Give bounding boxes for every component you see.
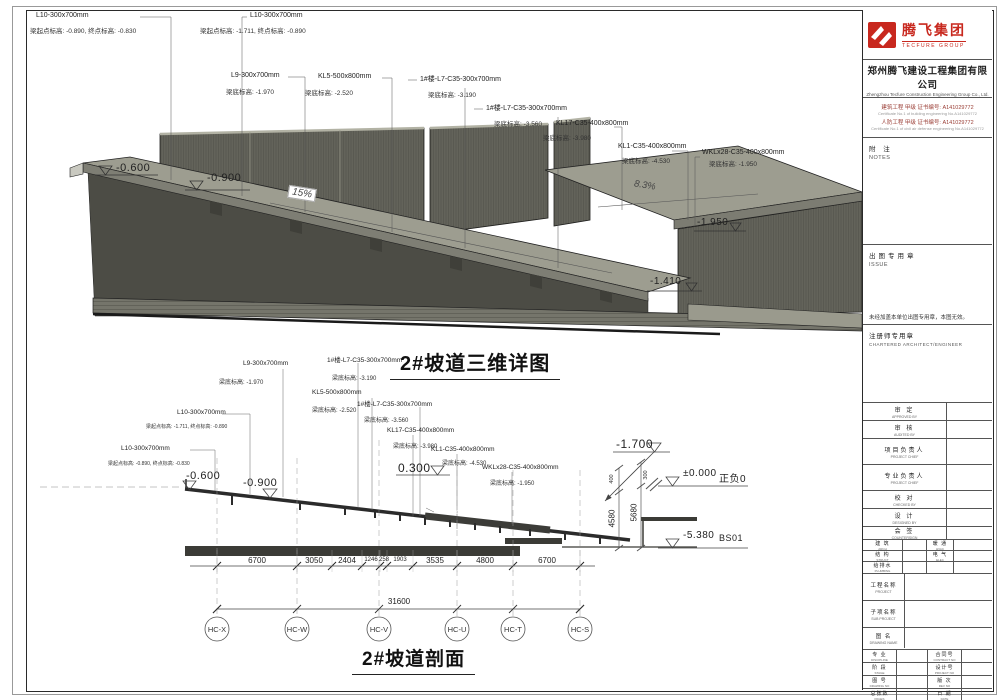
beam-annotation-elevation: 梁底标高: -3.560 (364, 415, 408, 424)
personnel-label: 设 计DESIGNED BY (863, 509, 947, 526)
beam-annotation-name: L10-300x700mm (250, 12, 303, 19)
meta-label: 设计号PROJECT NO (928, 663, 962, 675)
chartered-stamp-section: 注册师专用章 CHARTERED ARCHITECT/ENGINEER (863, 325, 992, 403)
discipline-label (927, 562, 954, 573)
elevation-label: -1.700 (616, 437, 653, 451)
meta-label: 合同号CONTRACT NO (928, 650, 962, 662)
discipline-row: 建 筑ARCH 暖 通HVAC (863, 540, 992, 551)
title-block: 腾飞集团 TECFURE GROUP 郑州腾飞建设工程集团有限公司 Zhengz… (862, 10, 992, 690)
chartered-label-cn: 注册师专用章 (869, 330, 986, 340)
personnel-row: 专业负责人PROJECT CHIEF (863, 465, 992, 491)
beam-annotation-name: KL5-500x800mm (318, 73, 371, 80)
elevation-label: -0.900 (207, 172, 241, 184)
meta-value-cell (897, 663, 928, 675)
issue-stamp-section: 出图专用章 ISSUE 未经加盖本单位出图专用章，本图无效。 (863, 245, 992, 325)
issue-label-en: ISSUE (869, 262, 986, 268)
elevation-label: -0.900 (243, 477, 277, 489)
vertical-dim-label: 5680 (630, 493, 639, 533)
dim-label: 6700 (240, 556, 274, 565)
meta-row: 总张数PAGES 日 期DATE (863, 689, 992, 700)
discipline-sign-cell (954, 540, 992, 550)
dim-label: 3535 (418, 556, 452, 565)
personnel-value-cell (947, 439, 992, 464)
company-logo-name: 腾飞集团 TECFURE GROUP (902, 20, 966, 49)
personnel-table: 审 定APPROVED BY 审 核AUDITED BY 项目负责人PROJEC… (863, 403, 992, 540)
meta-label: 日 期DATE (928, 689, 962, 700)
company-logo-cn: 腾飞集团 (902, 20, 966, 40)
beam-annotation-name: 1#楼-L7-C35-300x700mm (420, 74, 501, 84)
personnel-row: 设 计DESIGNED BY (863, 509, 992, 527)
beam-annotation-elevation: 梁起点标高: -1.711, 终点标高: -0.890 (146, 423, 227, 430)
beam-annotation-elevation: 梁起点标高: -0.890, 终点标高: -0.830 (108, 460, 190, 467)
elevation-label: ±0.000 (683, 468, 717, 479)
meta-row: 阶 段STAGE 设计号PROJECT NO (863, 663, 992, 676)
section-vertical-dims (615, 459, 662, 551)
beam-annotation-name: L9-300x700mm (243, 360, 288, 367)
personnel-row: 会 签COUNTERSIGN (863, 527, 992, 539)
discipline-label: 建 筑ARCH (863, 540, 903, 550)
notes-label-en: NOTES (869, 155, 986, 161)
project-label: 图 名DRAWING NAME (863, 628, 905, 648)
beam-annotation-name: KL17-C35-400x800mm (387, 427, 454, 434)
meta-value-cell (897, 650, 928, 662)
grid-bubble-label: HC-U (445, 625, 469, 634)
beam-annotation-name: KL17-C35-400x800mm (556, 120, 628, 127)
beam-annotation-elevation: 梁底标高: -1.970 (219, 377, 263, 386)
certificate-en: Certificate No.1 of civil air defense en… (863, 126, 992, 131)
meta-label: 阶 段STAGE (863, 663, 897, 675)
meta-value-cell (962, 663, 992, 675)
discipline-label: 暖 通HVAC (927, 540, 954, 550)
beam-annotation-name: KL5-500x800mm (312, 389, 362, 396)
meta-row: 图 号DRAWING NO 版 次REV NO (863, 676, 992, 689)
elevation-label: -1.410 (650, 276, 681, 287)
company-logo-section: 腾飞集团 TECFURE GROUP (863, 10, 992, 60)
discipline-sign-grid: 建 筑ARCH 暖 通HVAC 结 构STRUCT 电 气ELEC 给排水PLU… (863, 540, 992, 574)
discipline-sign-cell (903, 551, 927, 561)
vertical-dim-label: 400 (609, 459, 615, 499)
company-name-cn: 郑州腾飞建设工程集团有限公司 (863, 63, 992, 91)
certificate-en: Certificate No.1 of building engineering… (863, 111, 992, 116)
project-row: 子项名称SUB PROJECT (863, 601, 992, 628)
dim-label: 2404 (330, 556, 364, 565)
certificate-cn: 人防工程 甲级 证书编号: A141029772 (863, 118, 992, 126)
grid-bubble-label: HC-T (501, 625, 525, 634)
personnel-value-cell (947, 421, 992, 438)
discipline-row: 结 构STRUCT 电 气ELEC (863, 551, 992, 562)
dim-label: 3050 (297, 556, 331, 565)
beam-annotation-elevation: 梁底标高: -1.950 (709, 160, 757, 170)
project-value-cell (905, 574, 992, 600)
dim-label: 6700 (530, 556, 564, 565)
beam-annotation-elevation: 梁底标高: -2.520 (305, 89, 353, 99)
beam-annotation-name: L10-300x700mm (121, 445, 170, 452)
issue-note: 未经加盖本单位出图专用章，本图无效。 (869, 313, 968, 321)
beam-annotation-name: WKLx28-C35-400x800mm (482, 464, 559, 471)
beam-annotation-name: 1#楼-L7-C35-300x700mm (486, 103, 567, 113)
company-logo-icon (867, 21, 897, 49)
dim-label: 1903 (389, 557, 411, 563)
meta-row: 专 业DISCIPLINE 合同号CONTRACT NO (863, 650, 992, 663)
personnel-value-cell (947, 403, 992, 420)
meta-label: 专 业DISCIPLINE (863, 650, 897, 662)
personnel-label: 项目负责人PROJECT CHIEF (863, 439, 947, 464)
elevation-label: 0.300 (398, 461, 431, 475)
meta-label: 总张数PAGES (863, 689, 897, 700)
grid-bubble-label: HC-V (367, 625, 391, 634)
certificate-cn: 建筑工程 甲级 证书编号: A141029772 (863, 103, 992, 111)
certificates-section: 建筑工程 甲级 证书编号: A141029772 Certificate No.… (863, 98, 992, 138)
personnel-row: 审 核AUDITED BY (863, 421, 992, 439)
beam-annotation-elevation: 梁底标高: -3.980 (543, 134, 591, 144)
drawing-sheet: L10-300x700mm 梁起点标高: -0.890, 终点标高: -0.83… (0, 0, 1000, 700)
notes-label-cn: 附 注 (869, 143, 986, 153)
drawing-meta-grid: 专 业DISCIPLINE 合同号CONTRACT NO 阶 段STAGE 设计… (863, 650, 992, 700)
total-dim-label: 31600 (382, 597, 416, 606)
beam-annotation-elevation: 梁底标高: -3.190 (332, 373, 376, 382)
beam-annotation-name: KL1-C35-400x800mm (431, 446, 495, 453)
section-title: 2#坡道剖面 (352, 644, 475, 675)
discipline-sign-cell (903, 562, 927, 573)
grid-bubble-label: HC-W (285, 625, 309, 634)
discipline-sign-cell (954, 551, 992, 561)
beam-annotation-name: L9-300x700mm (231, 72, 280, 79)
company-name-en: Zhengzhou Tecfure Construction Engineeri… (863, 92, 992, 97)
beam-annotation-name: L10-300x700mm (36, 12, 89, 19)
personnel-label: 审 核AUDITED BY (863, 421, 947, 438)
beam-annotation-elevation: 梁起点标高: -0.890, 终点标高: -0.830 (30, 27, 170, 37)
issue-label-cn: 出图专用章 (869, 250, 986, 260)
discipline-sign-cell (954, 562, 992, 573)
project-label: 子项名称SUB PROJECT (863, 601, 905, 627)
grid-bubble-label: HC-S (568, 625, 592, 634)
beam-annotation-name: L10-300x700mm (177, 409, 226, 416)
discipline-label: 给排水PLUMBING (863, 562, 903, 573)
beam-annotation-name: WKLx28-C35-400x800mm (702, 149, 784, 156)
personnel-value-cell (947, 491, 992, 508)
company-logo-en: TECFURE GROUP (902, 41, 966, 49)
beam-annotation-name: KL1-C35-400x800mm (618, 143, 686, 150)
personnel-label: 专业负责人PROJECT CHIEF (863, 465, 947, 490)
vertical-dim-label: 4580 (608, 499, 617, 539)
personnel-label: 审 定APPROVED BY (863, 403, 947, 420)
personnel-label: 会 签COUNTERSIGN (863, 527, 947, 539)
elevation-name-label: BS01 (719, 533, 743, 543)
discipline-label: 电 气ELEC (927, 551, 954, 561)
meta-value-cell (962, 689, 992, 700)
beam-annotation-elevation: 梁底标高: -1.970 (226, 88, 274, 98)
meta-value-cell (897, 676, 928, 688)
project-value-cell (905, 601, 992, 627)
project-value-cell (905, 628, 992, 648)
notes-section: 附 注 NOTES (863, 138, 992, 245)
project-row: 图 名DRAWING NAME (863, 628, 992, 648)
vertical-dim-label: 300 (643, 455, 649, 495)
beam-annotation-elevation: 梁起点标高: -1.711, 终点标高: -0.890 (200, 27, 350, 37)
elevation-label: -0.600 (186, 470, 220, 482)
project-row: 工程名称PROJECT (863, 574, 992, 601)
project-label: 工程名称PROJECT (863, 574, 905, 600)
meta-value-cell (962, 650, 992, 662)
meta-label: 版 次REV NO (928, 676, 962, 688)
personnel-value-cell (947, 527, 992, 539)
beam-annotation-elevation: 梁底标高: -2.520 (312, 405, 356, 414)
section-geometry (40, 479, 697, 551)
meta-value-cell (897, 689, 928, 700)
beam-annotation-elevation: 梁底标高: -3.190 (428, 91, 476, 101)
discipline-sign-cell (903, 540, 927, 550)
elevation-label: -0.600 (116, 162, 150, 174)
beam-annotation-name: 1#楼-L7-C35-300x700mm (327, 354, 402, 364)
beam-annotation-elevation: 梁底标高: -3.560 (494, 120, 542, 130)
beam-annotation-name: 1#楼-L7-C35-300x700mm (357, 398, 432, 408)
view-3d-title: 2#坡道三维详图 (390, 347, 560, 380)
personnel-row: 审 定APPROVED BY (863, 403, 992, 421)
personnel-value-cell (947, 465, 992, 490)
discipline-label: 结 构STRUCT (863, 551, 903, 561)
meta-label: 图 号DRAWING NO (863, 676, 897, 688)
personnel-label: 校 对CHECKED BY (863, 491, 947, 508)
chartered-label-en: CHARTERED ARCHITECT/ENGINEER (869, 342, 986, 347)
discipline-row: 给排水PLUMBING (863, 562, 992, 573)
beam-annotation-elevation: 梁底标高: -1.950 (490, 478, 534, 487)
elevation-label: -1.950 (697, 217, 728, 228)
personnel-value-cell (947, 509, 992, 526)
project-name-rows: 工程名称PROJECT 子项名称SUB PROJECT 图 名DRAWING N… (863, 574, 992, 650)
personnel-row: 项目负责人PROJECT CHIEF (863, 439, 992, 465)
beam-annotation-elevation: 梁底标高: -4.530 (622, 157, 670, 167)
beam-annotation-elevation: 梁底标高: -4.530 (442, 458, 486, 467)
personnel-row: 校 对CHECKED BY (863, 491, 992, 509)
meta-value-cell (962, 676, 992, 688)
dim-label: 4800 (468, 556, 502, 565)
elevation-name-label: 正负0 (719, 470, 746, 485)
company-name-section: 郑州腾飞建设工程集团有限公司 Zhengzhou Tecfure Constru… (863, 60, 992, 98)
grid-bubble-label: HC-X (205, 625, 229, 634)
elevation-label: -5.380 (683, 530, 714, 541)
